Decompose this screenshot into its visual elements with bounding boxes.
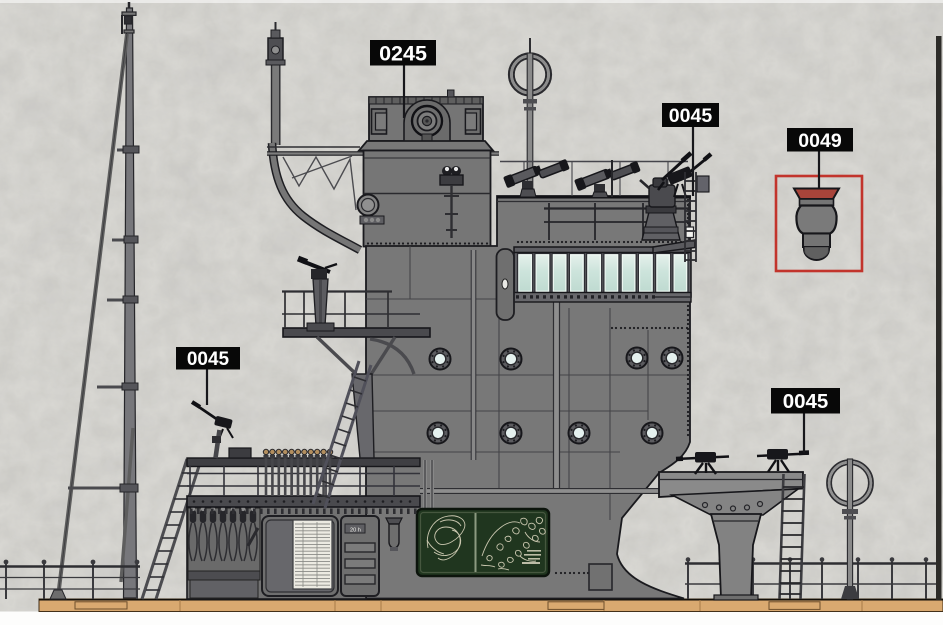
svg-text:0245: 0245: [379, 42, 427, 66]
svg-text:0045: 0045: [669, 105, 713, 127]
svg-text:0045: 0045: [783, 390, 829, 413]
svg-text:0045: 0045: [187, 349, 230, 370]
svg-text:20 h: 20 h: [350, 528, 361, 534]
svg-text:0049: 0049: [798, 130, 842, 152]
